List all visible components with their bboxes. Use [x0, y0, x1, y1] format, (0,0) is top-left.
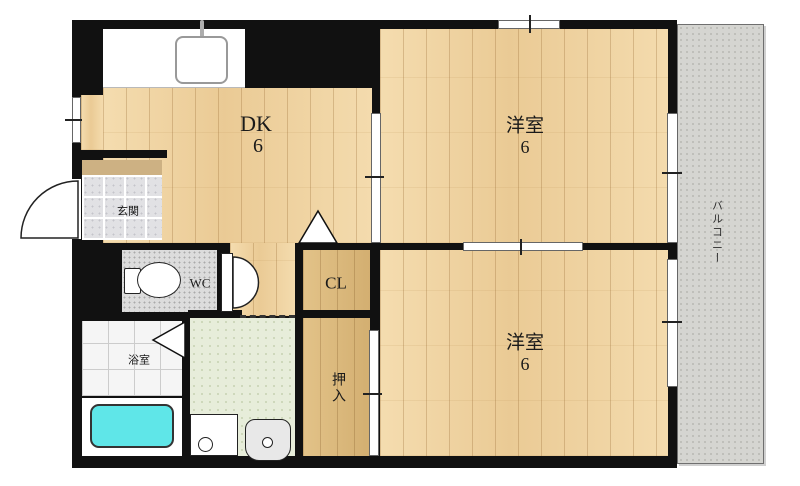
- toilet-bowl: [137, 262, 181, 298]
- closet-label: CL: [325, 275, 347, 292]
- wc-label: WC: [190, 277, 211, 290]
- floorplan: バルコニー: [0, 0, 800, 486]
- balcony-door-lower-tick: [662, 321, 682, 323]
- window-left-tick: [65, 119, 82, 121]
- western-room-lower-size: 6: [521, 355, 530, 373]
- balcony-door-upper-tick: [662, 172, 682, 174]
- sliding-door-dk-upper-room: [371, 113, 381, 243]
- dk-floor-west-strip: [81, 95, 103, 150]
- balcony-door-upper: [667, 113, 678, 243]
- western-room-upper-label: 洋室: [506, 117, 544, 136]
- western-room-upper-size: 6: [521, 138, 530, 156]
- kitchen-sink: [175, 36, 228, 84]
- washing-machine-pan: [190, 414, 238, 456]
- balcony-label: バルコニー: [711, 200, 722, 265]
- washroom-accordion-door: [240, 315, 295, 318]
- entrance-label: 玄関: [117, 207, 139, 218]
- entrance-stub-wall: [78, 150, 167, 158]
- wc-door-swing-icon: [230, 250, 266, 314]
- washbasin-drain-icon: [262, 437, 273, 448]
- entrance-step: [82, 160, 162, 175]
- balcony-door-lower: [667, 259, 678, 387]
- dk-size: 6: [253, 136, 263, 156]
- sliding-door-dk-tick: [365, 176, 384, 178]
- sliding-door-between-rooms: [463, 242, 583, 251]
- window-top-tick: [529, 15, 531, 33]
- oshiire-label: 押入: [330, 372, 344, 404]
- sliding-door-between-rooms-tick: [520, 239, 522, 255]
- bathroom-door-triangle-icon: [150, 320, 190, 362]
- dk-label: DK: [240, 113, 272, 135]
- closet-door-triangle-icon: [296, 209, 342, 246]
- entrance-door-swing-icon: [14, 176, 82, 242]
- washing-machine-drain-icon: [198, 437, 213, 452]
- bathroom-label: 浴室: [128, 356, 150, 367]
- bathtub: [90, 404, 174, 448]
- western-room-lower-label: 洋室: [506, 334, 544, 353]
- oshiire-fusuma-tick: [363, 393, 382, 395]
